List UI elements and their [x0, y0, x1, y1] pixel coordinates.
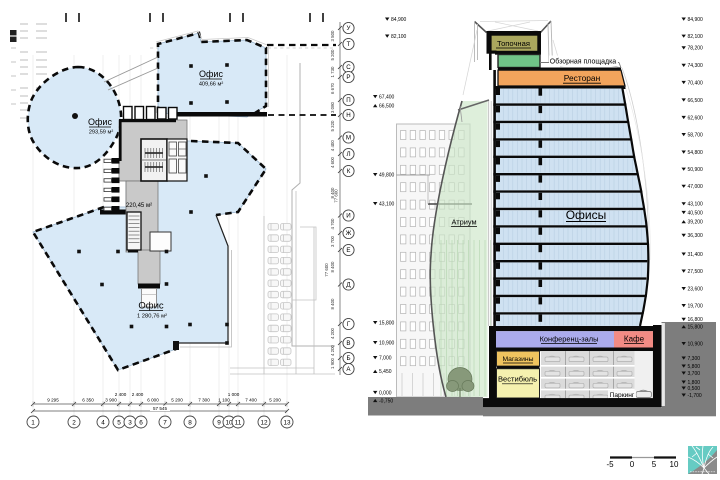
svg-text:15,800: 15,800	[379, 320, 395, 326]
svg-text:1 280,76 м²: 1 280,76 м²	[137, 314, 167, 320]
svg-text:5 200: 5 200	[269, 398, 281, 403]
svg-text:П: П	[346, 97, 350, 104]
svg-text:Н: Н	[346, 112, 350, 119]
svg-text:1 730: 1 730	[330, 66, 335, 78]
svg-text:13: 13	[283, 419, 291, 426]
svg-text:Б: Б	[346, 355, 350, 362]
svg-text:4 400: 4 400	[330, 140, 335, 152]
svg-text:84,900: 84,900	[391, 17, 407, 23]
svg-text:6 670: 6 670	[330, 82, 335, 94]
svg-text:220,45 м²: 220,45 м²	[126, 203, 152, 209]
svg-text:78,200: 78,200	[688, 46, 704, 52]
svg-text:Конференц-залы: Конференц-залы	[540, 334, 599, 343]
svg-text:57 545: 57 545	[153, 406, 167, 411]
svg-text:-5: -5	[606, 460, 614, 469]
svg-text:11: 11	[235, 419, 242, 426]
svg-text:9 295: 9 295	[47, 398, 59, 403]
svg-text:16,800: 16,800	[688, 317, 704, 323]
svg-text:77 600: 77 600	[324, 263, 329, 277]
svg-text:58,700: 58,700	[688, 132, 704, 138]
svg-text:Магазины: Магазины	[502, 356, 533, 363]
svg-text:36,300: 36,300	[688, 233, 704, 239]
svg-text:62,600: 62,600	[688, 115, 704, 121]
svg-text:Кафе: Кафе	[624, 334, 645, 343]
svg-text:10,900: 10,900	[379, 340, 395, 346]
svg-text:0: 0	[630, 460, 635, 469]
svg-text:74,300: 74,300	[688, 63, 704, 69]
svg-text:82,100: 82,100	[688, 34, 704, 40]
svg-text:3 500: 3 500	[330, 30, 335, 42]
svg-text:3: 3	[128, 419, 132, 426]
svg-text:Е: Е	[346, 247, 350, 254]
svg-text:7,000: 7,000	[379, 355, 392, 361]
svg-text:15,800: 15,800	[688, 325, 704, 331]
svg-text:7 300: 7 300	[198, 398, 210, 403]
svg-text:Ресторан: Ресторан	[564, 73, 601, 83]
svg-text:4 600: 4 600	[330, 156, 335, 168]
svg-text:5,800: 5,800	[688, 364, 701, 370]
svg-text:4 200: 4 200	[330, 327, 335, 339]
svg-text:19,700: 19,700	[688, 303, 704, 309]
svg-text:Л: Л	[346, 151, 350, 158]
svg-text:5,450: 5,450	[379, 369, 392, 375]
svg-text:4 700: 4 700	[330, 218, 335, 230]
svg-text:0,500: 0,500	[688, 386, 701, 392]
svg-text:4: 4	[101, 419, 105, 426]
svg-text:Атриум: Атриум	[451, 218, 476, 227]
svg-text:10,900: 10,900	[688, 341, 704, 347]
svg-text:К: К	[347, 168, 351, 175]
svg-text:82,100: 82,100	[391, 34, 407, 40]
svg-text:70,400: 70,400	[688, 80, 704, 86]
svg-text:67,400: 67,400	[379, 94, 395, 100]
svg-text:Р: Р	[346, 74, 350, 81]
svg-text:409,66 м²: 409,66 м²	[199, 82, 224, 88]
svg-text:Паркинг: Паркинг	[610, 392, 635, 399]
svg-text:7,300: 7,300	[688, 356, 701, 362]
svg-text:М: М	[346, 135, 351, 142]
svg-text:И: И	[346, 213, 350, 220]
svg-text:-1,700: -1,700	[688, 393, 702, 399]
svg-text:0,000: 0,000	[379, 390, 392, 396]
svg-text:12: 12	[260, 419, 268, 426]
svg-text:1 100: 1 100	[218, 398, 230, 403]
svg-text:8 400: 8 400	[330, 298, 335, 310]
svg-text:31,400: 31,400	[688, 252, 704, 258]
svg-text:10: 10	[670, 460, 679, 469]
svg-text:66,500: 66,500	[688, 98, 704, 104]
svg-text:4 200: 4 200	[330, 344, 335, 356]
svg-text:-0,750: -0,750	[379, 398, 393, 404]
svg-text:27,500: 27,500	[688, 269, 704, 275]
svg-text:Офисы: Офисы	[566, 208, 607, 222]
svg-text:3 700: 3 700	[330, 235, 335, 247]
svg-text:5 320: 5 320	[330, 120, 335, 132]
svg-text:3,700: 3,700	[688, 371, 701, 377]
svg-text:6 000: 6 000	[147, 398, 159, 403]
svg-text:2: 2	[72, 419, 76, 426]
svg-text:3 900: 3 900	[105, 398, 117, 403]
svg-text:2 400: 2 400	[115, 392, 127, 397]
svg-text:Т: Т	[347, 41, 351, 48]
svg-text:50,900: 50,900	[688, 167, 704, 173]
svg-text:43,100: 43,100	[379, 201, 395, 207]
svg-text:Топочная: Топочная	[497, 39, 530, 48]
svg-text:5 200: 5 200	[330, 49, 335, 61]
svg-text:6: 6	[139, 419, 143, 426]
svg-text:8: 8	[188, 419, 192, 426]
svg-text:Ж: Ж	[346, 230, 352, 237]
svg-text:Офис: Офис	[138, 301, 164, 312]
svg-text:43,100: 43,100	[688, 202, 704, 208]
svg-text:2 400: 2 400	[132, 392, 144, 397]
svg-text:Вестибюль: Вестибюль	[498, 375, 537, 384]
svg-text:9: 9	[217, 419, 221, 426]
svg-text:Офис: Офис	[88, 117, 112, 127]
svg-text:39,200: 39,200	[688, 220, 704, 226]
svg-text:7: 7	[163, 419, 167, 426]
svg-text:23,600: 23,600	[688, 286, 704, 292]
svg-text:40,500: 40,500	[688, 210, 704, 216]
svg-text:66,500: 66,500	[379, 103, 395, 109]
svg-text:84,900: 84,900	[688, 17, 704, 23]
svg-text:В: В	[346, 340, 350, 347]
svg-text:6 350: 6 350	[82, 398, 94, 403]
svg-text:7 400: 7 400	[245, 398, 257, 403]
svg-text:3 080: 3 080	[330, 101, 335, 113]
svg-text:77 600: 77 600	[334, 189, 339, 203]
svg-text:1: 1	[31, 419, 35, 426]
svg-text:С: С	[346, 64, 351, 71]
svg-text:293,59 м²: 293,59 м²	[89, 130, 114, 136]
svg-text:8 400: 8 400	[330, 261, 335, 273]
svg-text:5: 5	[652, 460, 657, 469]
svg-text:54,800: 54,800	[688, 150, 704, 156]
svg-text:5 200: 5 200	[171, 398, 183, 403]
svg-text:1 900: 1 900	[330, 357, 335, 369]
svg-text:49,800: 49,800	[379, 172, 395, 178]
svg-text:47,000: 47,000	[688, 184, 704, 190]
svg-text:5: 5	[117, 419, 121, 426]
svg-text:Офис: Офис	[199, 69, 223, 79]
svg-text:У: У	[347, 25, 351, 32]
svg-text:1 000: 1 000	[228, 392, 240, 397]
svg-text:Обзорная площадка: Обзорная площадка	[550, 58, 617, 66]
